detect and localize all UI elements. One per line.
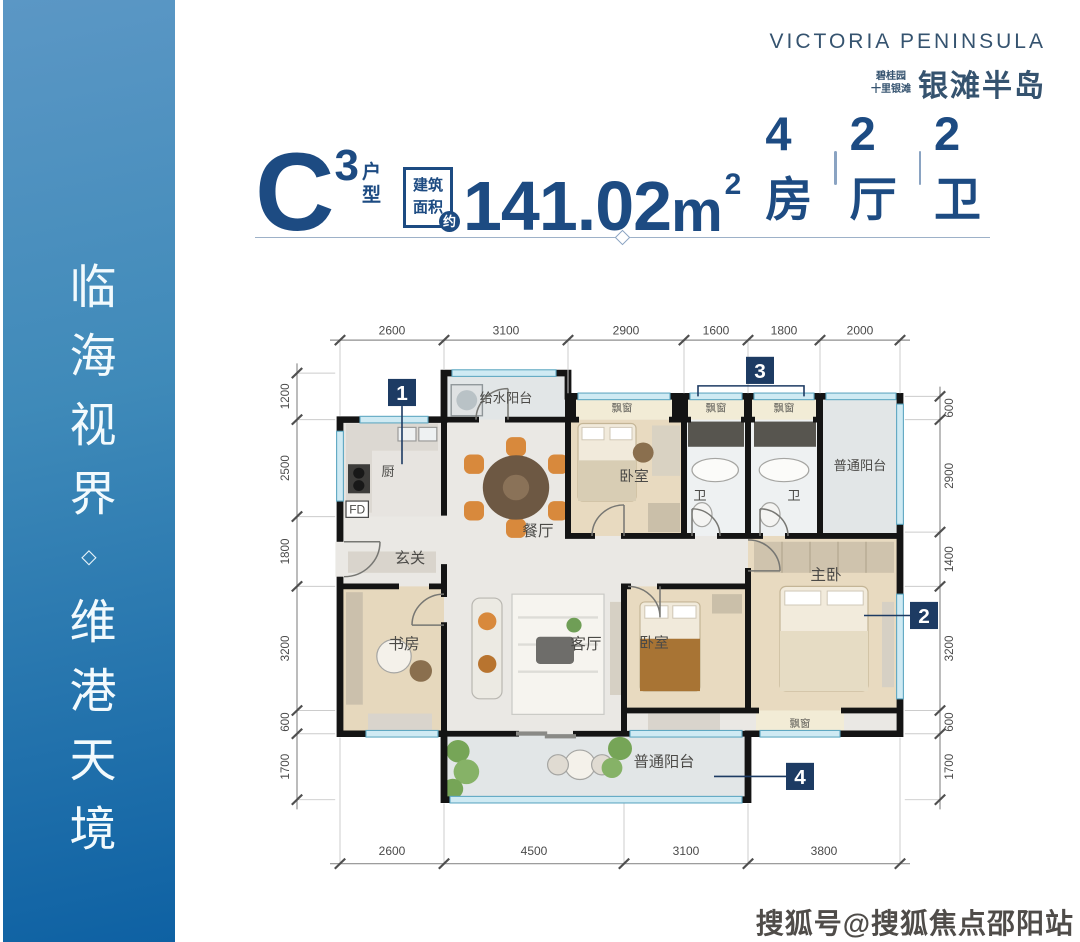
- marker-4: 4: [794, 766, 806, 789]
- spec-baths: 2卫: [934, 106, 990, 230]
- spec-divider: [919, 151, 921, 185]
- label-dining: 餐厅: [522, 522, 553, 540]
- label-study: 书房: [388, 635, 419, 653]
- logo-chinese: 碧桂园 十里银滩 银滩半岛: [769, 61, 1046, 105]
- logo-sub-line-2: 十里银滩: [871, 83, 911, 96]
- logo-english: VICTORIA PENINSULA: [769, 30, 1046, 54]
- spec-divider: [834, 151, 836, 185]
- banner-line-1: 临海视界: [55, 262, 124, 538]
- label-foyer: 玄关: [395, 550, 425, 567]
- furniture-living: [472, 594, 621, 714]
- label-bedroom-bottom: 卧室: [639, 634, 669, 651]
- brand-logo: VICTORIA PENINSULA 碧桂园 十里银滩 银滩半岛: [769, 30, 1046, 105]
- label-bath-2: 卫: [787, 488, 800, 503]
- dim-left-5: 600: [280, 712, 292, 732]
- dim-top-5: 1800: [771, 325, 798, 337]
- label-kitchen: 厨: [381, 464, 394, 479]
- diamond-icon: ◇: [81, 544, 96, 569]
- dim-right-2: 2900: [942, 463, 956, 489]
- marker-1: 1: [396, 383, 408, 406]
- logo-sub-line-1: 碧桂园: [871, 70, 911, 83]
- unit-type-letter: C: [255, 148, 334, 238]
- logo-main-brand: 银滩半岛: [918, 61, 1046, 105]
- label-balcony-bottom: 普通阳台: [634, 754, 695, 771]
- label-balcony-top: 普通阳台: [834, 458, 887, 473]
- dim-bottom-1: 2600: [379, 844, 406, 858]
- label-bath-1: 卫: [693, 488, 706, 503]
- dim-right-3: 1400: [942, 546, 956, 572]
- unit-title: C 3 户 型 建筑 面积 约 141.02 m 2 4房 2厅 2卫: [255, 138, 990, 238]
- fd-box: FD: [346, 501, 368, 517]
- label-living: 客厅: [570, 635, 601, 653]
- dim-top-6: 2000: [847, 325, 874, 337]
- unit-type-char-1: 户: [362, 162, 381, 185]
- area-unit: m: [671, 186, 723, 238]
- dim-top-3: 2900: [613, 325, 640, 337]
- dim-bottom-2: 4500: [521, 844, 548, 858]
- unit-type-char-2: 型: [362, 185, 381, 208]
- dim-top-1: 2600: [379, 325, 406, 337]
- label-bedroom-top: 卧室: [619, 468, 649, 485]
- floor-plan: FD 给水阳台 飘窗 飘窗 飘窗 厨 餐厅 卧室 卫 卫 普通阳台 玄关 主卧 …: [280, 325, 980, 885]
- unit-type: C 3 户 型: [255, 148, 381, 238]
- spec-rooms: 4房: [765, 106, 821, 230]
- page: { "banner": { "line1": "临海视界", "diamond"…: [0, 0, 1080, 942]
- dim-left-2: 2500: [280, 455, 292, 481]
- unit-type-superscript: 3: [334, 144, 358, 188]
- marker-3: 3: [754, 360, 766, 383]
- banner-slogan: 临海视界 ◇ 维港天境: [55, 262, 124, 873]
- spec-halls: 2厅: [850, 106, 906, 230]
- dim-top-2: 3100: [493, 325, 520, 337]
- side-banner: 临海视界 ◇ 维港天境: [3, 0, 175, 942]
- dim-right-6: 1700: [942, 753, 956, 779]
- area-unit-superscript: 2: [725, 170, 742, 200]
- fd-label: FD: [349, 503, 365, 517]
- room-specs: 4房 2厅 2卫: [765, 106, 990, 230]
- watermark: 搜狐号@搜狐焦点邵阳站: [756, 902, 1074, 942]
- unit-type-suffix: 户 型: [362, 162, 381, 208]
- dim-left-3: 1800: [280, 538, 292, 564]
- dim-bottom-3: 3100: [673, 844, 700, 858]
- logo-sub-brand: 碧桂园 十里银滩: [871, 70, 911, 96]
- banner-line-2: 维港天境: [55, 597, 124, 873]
- dim-right-4: 3200: [942, 635, 956, 661]
- dim-left-6: 1700: [280, 753, 292, 779]
- label-master: 主卧: [810, 566, 841, 584]
- area-label-line-1: 建筑: [406, 175, 450, 197]
- dim-right-5: 600: [942, 712, 956, 732]
- area-label-box: 建筑 面积 约: [403, 167, 453, 228]
- area-approx-badge: 约: [439, 211, 460, 232]
- title-divider-line: [255, 237, 990, 238]
- dim-left-4: 3200: [280, 635, 292, 661]
- label-water-balcony: 给水阳台: [480, 391, 533, 406]
- dim-bottom-4: 3800: [811, 844, 838, 858]
- dim-right-1: 600: [942, 398, 956, 418]
- dim-top-4: 1600: [703, 325, 730, 337]
- marker-2: 2: [918, 606, 930, 629]
- dim-left-1: 1200: [280, 383, 292, 409]
- area-value: 141.02: [463, 175, 671, 238]
